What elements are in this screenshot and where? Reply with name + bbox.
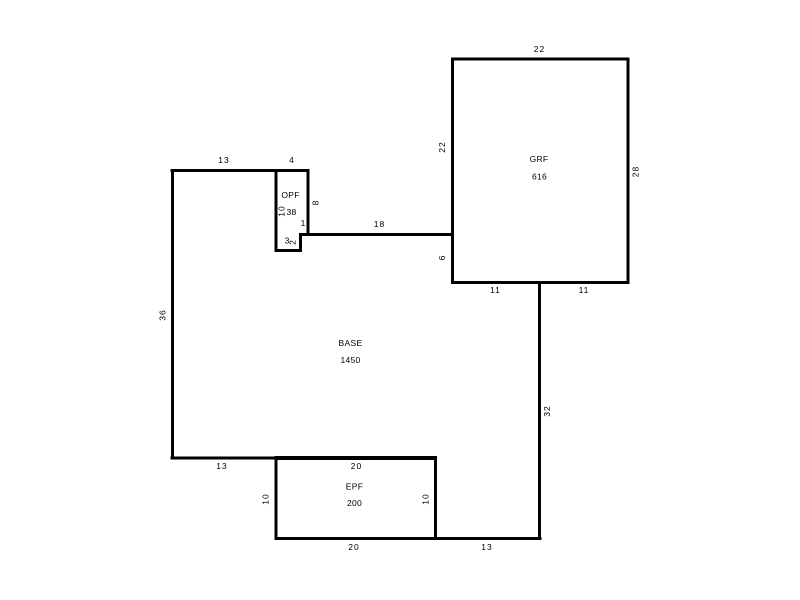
svg-text:22: 22 xyxy=(437,141,447,152)
svg-text:EPF: EPF xyxy=(346,482,363,492)
svg-text:22: 22 xyxy=(534,44,545,54)
svg-text:10: 10 xyxy=(261,493,271,504)
svg-text:13: 13 xyxy=(216,461,227,471)
svg-text:20: 20 xyxy=(351,461,362,471)
svg-text:20: 20 xyxy=(348,542,359,552)
svg-text:38: 38 xyxy=(286,207,296,217)
svg-text:10: 10 xyxy=(421,493,431,504)
svg-text:28: 28 xyxy=(631,166,641,177)
svg-text:6: 6 xyxy=(437,255,447,261)
svg-text:616: 616 xyxy=(532,172,547,182)
svg-text:BASE: BASE xyxy=(339,338,363,348)
svg-text:GRF: GRF xyxy=(530,154,549,164)
svg-text:8: 8 xyxy=(311,200,321,206)
svg-text:18: 18 xyxy=(374,219,385,229)
svg-text:32: 32 xyxy=(542,405,552,416)
svg-text:10: 10 xyxy=(277,205,287,216)
svg-text:4: 4 xyxy=(289,155,295,165)
svg-text:OPF: OPF xyxy=(281,190,299,200)
svg-text:1: 1 xyxy=(301,218,307,228)
svg-text:1450: 1450 xyxy=(340,355,360,365)
svg-text:11: 11 xyxy=(579,285,590,295)
svg-text:13: 13 xyxy=(218,155,229,165)
svg-text:11: 11 xyxy=(490,285,501,295)
svg-text:13: 13 xyxy=(481,542,492,552)
svg-text:36: 36 xyxy=(158,309,168,320)
svg-text:2: 2 xyxy=(288,239,298,245)
svg-text:200: 200 xyxy=(347,498,362,508)
